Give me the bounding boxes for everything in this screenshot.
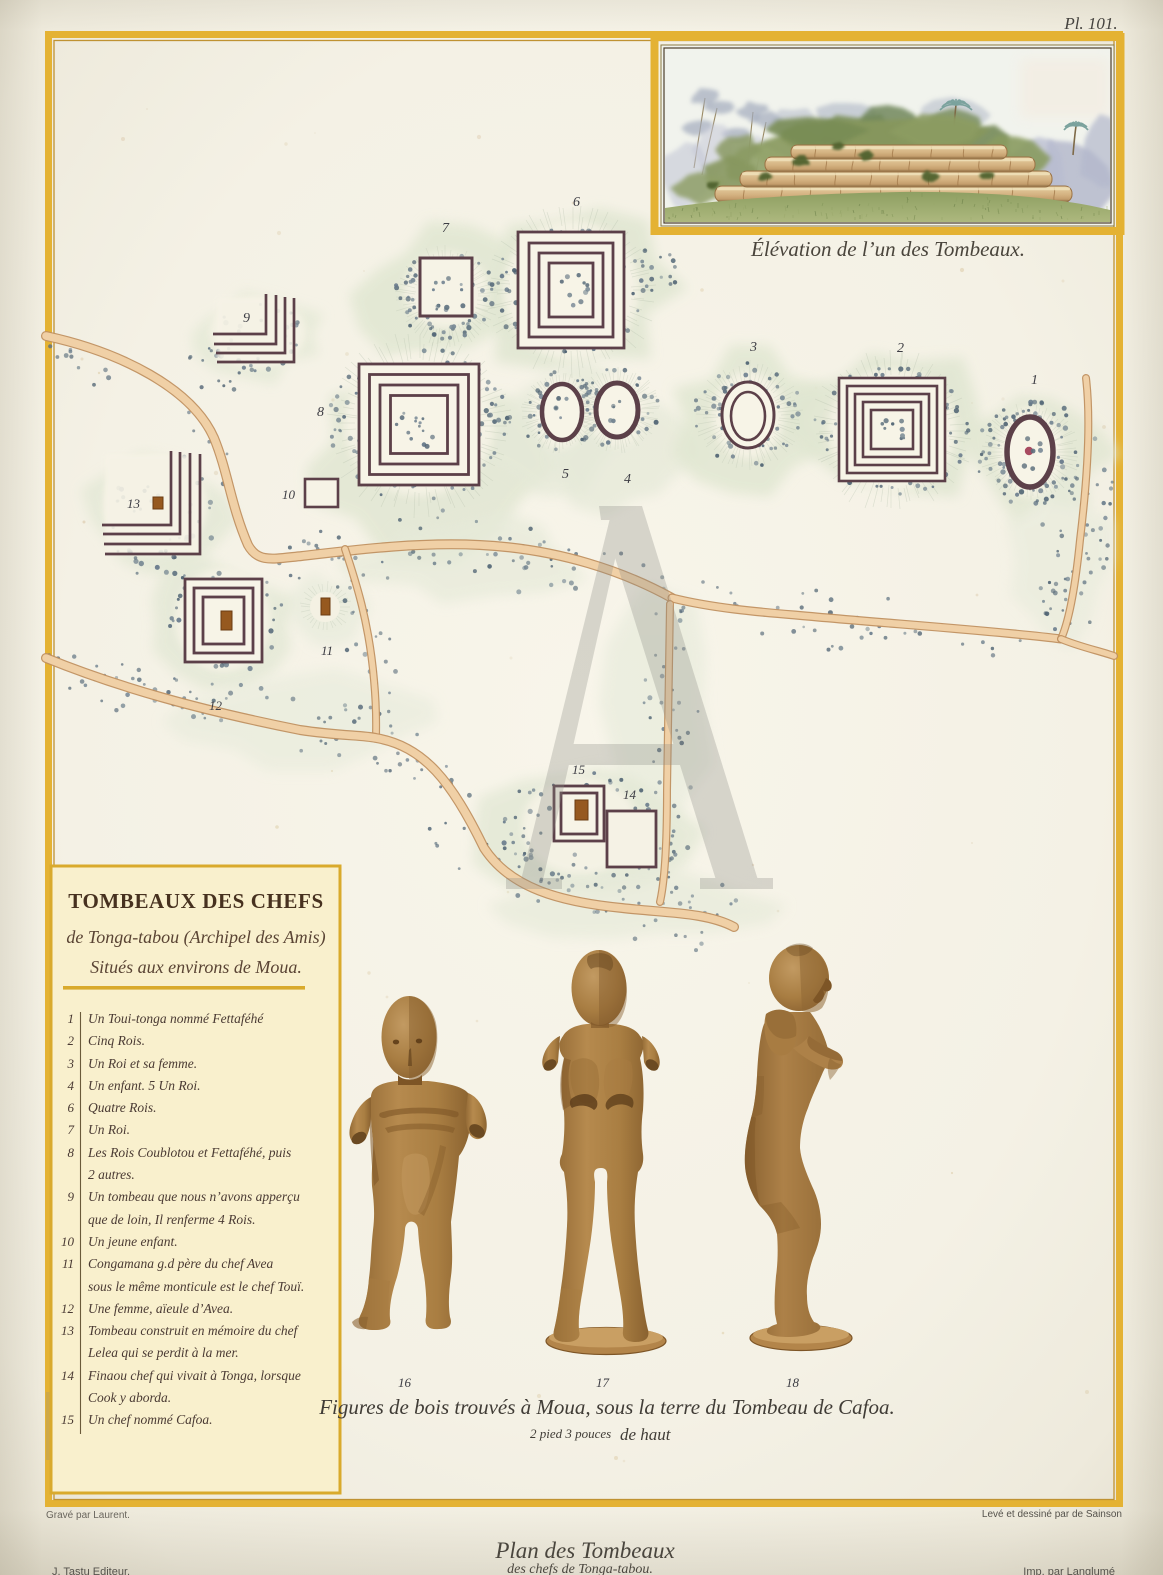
svg-text:Les Rois Coublotou et Fettaféh: Les Rois Coublotou et Fettaféhé, puis [87,1145,291,1160]
svg-text:Lelea qui se perdit à la mer.: Lelea qui se perdit à la mer. [87,1345,239,1360]
svg-text:5: 5 [562,467,569,482]
svg-text:Quatre Rois.: Quatre Rois. [88,1100,157,1115]
svg-text:8: 8 [68,1145,75,1160]
svg-text:sous le même monticule est le: sous le même monticule est le chef Touï. [88,1279,304,1294]
svg-text:3: 3 [749,340,757,355]
svg-text:Finaou chef qui vivait à Tonga: Finaou chef qui vivait à Tonga, lorsque [87,1368,301,1383]
svg-text:de Tonga-tabou (Archipel des A: de Tonga-tabou (Archipel des Amis) [66,927,325,948]
svg-text:7: 7 [442,221,450,236]
svg-text:Élévation de l’un des Tombeaux: Élévation de l’un des Tombeaux. [750,237,1025,261]
svg-text:9: 9 [243,311,250,326]
svg-text:3: 3 [67,1056,75,1071]
svg-text:13: 13 [61,1323,75,1338]
svg-text:13: 13 [127,496,141,511]
svg-text:Un Roi.: Un Roi. [88,1122,130,1137]
svg-text:Une femme, aïeule d’Avea.: Une femme, aïeule d’Avea. [88,1301,233,1316]
svg-text:Tombeau construit en mémoire d: Tombeau construit en mémoire du chef [88,1323,300,1338]
svg-text:16: 16 [398,1375,412,1390]
svg-text:de haut: de haut [620,1425,672,1444]
svg-text:2 autres.: 2 autres. [88,1167,135,1182]
svg-text:Plan des Tombeaux: Plan des Tombeaux [494,1538,675,1563]
svg-text:Situés aux environs de Moua.: Situés aux environs de Moua. [90,957,302,977]
svg-text:15: 15 [61,1412,75,1427]
svg-text:14: 14 [61,1368,75,1383]
svg-text:4: 4 [624,472,631,487]
svg-text:Levé et dessiné par de Sainson: Levé et dessiné par de Sainson [982,1509,1122,1520]
svg-text:6: 6 [68,1100,75,1115]
svg-text:12: 12 [209,698,223,713]
svg-text:14: 14 [623,787,637,802]
svg-text:Un jeune enfant.: Un jeune enfant. [88,1234,178,1249]
svg-text:11: 11 [62,1256,74,1271]
svg-text:que de loin, Il renferme 4 Roi: que de loin, Il renferme 4 Rois. [88,1212,255,1227]
svg-text:2 pied 3 pouces: 2 pied 3 pouces [530,1426,611,1441]
svg-text:Figures de bois trouvés à Moua: Figures de bois trouvés à Moua, sous la … [318,1395,895,1419]
svg-text:4: 4 [68,1078,75,1093]
svg-text:des chefs de Tonga-tabou.: des chefs de Tonga-tabou. [507,1562,653,1575]
svg-text:TOMBEAUX DES CHEFS: TOMBEAUX DES CHEFS [68,889,323,913]
svg-text:Cook y aborda.: Cook y aborda. [88,1390,171,1405]
svg-text:18: 18 [786,1375,800,1390]
svg-text:Imp. par Langlumé: Imp. par Langlumé [1023,1566,1115,1575]
svg-text:Congamana g.d père du chef Ave: Congamana g.d père du chef Avea [88,1256,273,1271]
svg-text:Un tombeau que nous n’avons ap: Un tombeau que nous n’avons apperçu [88,1189,300,1204]
svg-text:7: 7 [68,1122,75,1137]
svg-text:1: 1 [1031,373,1038,388]
svg-text:Un Toui-tonga nommé Fettaféhé: Un Toui-tonga nommé Fettaféhé [88,1011,264,1026]
svg-text:Un chef nommé Cafoa.: Un chef nommé Cafoa. [88,1412,212,1427]
svg-text:J. Tastu Editeur.: J. Tastu Editeur. [52,1566,130,1575]
svg-text:6: 6 [573,195,580,210]
svg-text:Pl. 101.: Pl. 101. [1063,14,1117,33]
svg-text:Un enfant. 5 Un Roi.: Un enfant. 5 Un Roi. [88,1078,201,1093]
svg-text:9: 9 [68,1189,75,1204]
svg-text:2: 2 [897,341,904,356]
svg-text:10: 10 [282,487,296,502]
svg-text:1: 1 [68,1011,75,1026]
svg-text:17: 17 [596,1375,610,1390]
svg-text:Gravé par Laurent.: Gravé par Laurent. [46,1510,130,1521]
svg-text:Cinq Rois.: Cinq Rois. [88,1033,145,1048]
svg-text:10: 10 [61,1234,75,1249]
svg-text:11: 11 [321,643,333,658]
svg-text:8: 8 [317,405,324,420]
svg-text:12: 12 [61,1301,75,1316]
svg-text:2: 2 [68,1033,75,1048]
svg-text:Un Roi et sa femme.: Un Roi et sa femme. [88,1056,197,1071]
